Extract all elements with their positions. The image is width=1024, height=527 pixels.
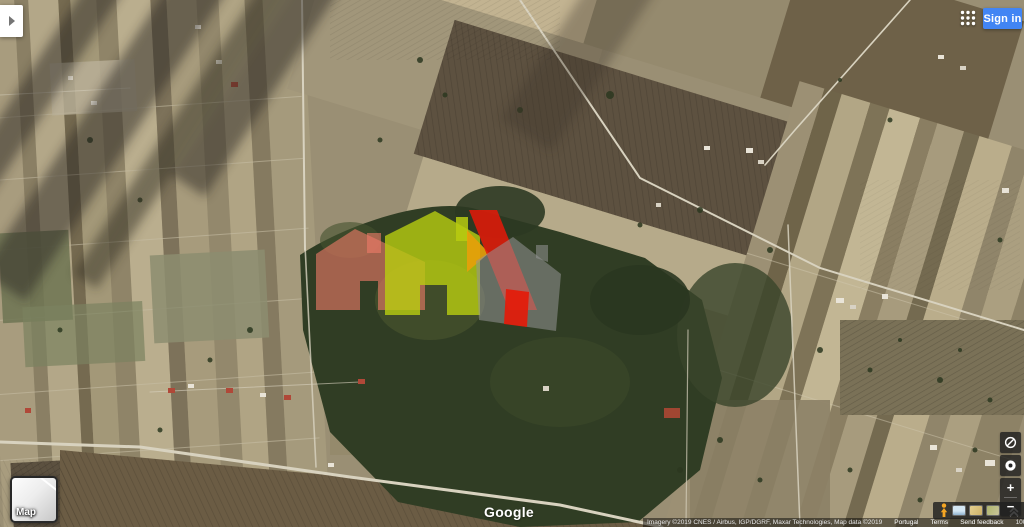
scale-control[interactable]: 100 m [1016, 519, 1024, 526]
scale-label: 100 m [1016, 519, 1024, 526]
imagery-thumbnail-1[interactable] [952, 505, 966, 516]
attribution-bar: Imagery ©2019 CNES / Airbus, IGP/DGRF, M… [643, 518, 1024, 527]
zoom-control: + − [1000, 478, 1021, 516]
expand-side-panel-button[interactable] [0, 5, 23, 37]
compass-button[interactable] [1000, 432, 1021, 453]
region-link[interactable]: Portugal [894, 519, 918, 526]
overlay-red-door [504, 289, 529, 327]
map-type-toggle[interactable]: Map [10, 476, 58, 523]
overlay-house-salmon-chimney [367, 233, 381, 253]
compass-icon [1003, 435, 1018, 450]
google-apps-grid-icon[interactable] [959, 9, 977, 27]
property-houses-overlay [0, 0, 1024, 527]
chevron-right-icon [9, 16, 15, 26]
imagery-credit: Imagery ©2019 CNES / Airbus, IGP/DGRF, M… [647, 519, 882, 526]
zoom-in-button[interactable]: + [1000, 479, 1021, 497]
sign-in-button[interactable]: Sign in [983, 8, 1022, 29]
overlay-house-green-chimney [456, 217, 468, 241]
google-logo[interactable]: Google [484, 504, 534, 520]
send-feedback-link[interactable]: Send feedback [960, 519, 1003, 526]
pegman-icon[interactable] [939, 503, 949, 518]
zoom-out-button[interactable]: − [1000, 498, 1021, 516]
google-maps-satellite-view: Sign in Map Google Imagery ©2019 CNES / … [0, 0, 1024, 527]
imagery-thumbnail-3[interactable] [986, 505, 1000, 516]
my-location-button[interactable] [1000, 455, 1021, 476]
map-thumbnail-road [31, 476, 58, 492]
imagery-thumbnail-2[interactable] [969, 505, 983, 516]
my-location-icon [1003, 458, 1018, 473]
terms-link[interactable]: Terms [930, 519, 948, 526]
map-type-label: Map [16, 507, 36, 518]
